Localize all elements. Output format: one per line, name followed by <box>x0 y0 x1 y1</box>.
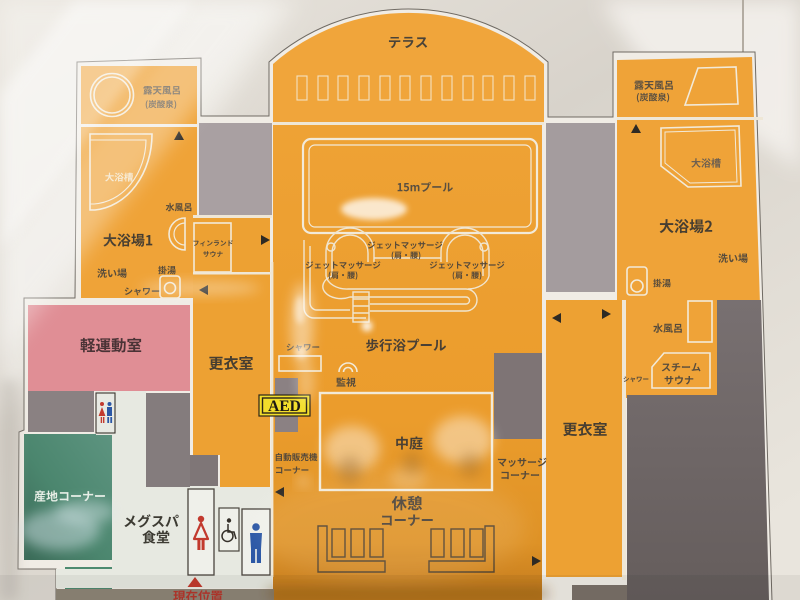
svg-text:AED: AED <box>268 398 301 415</box>
